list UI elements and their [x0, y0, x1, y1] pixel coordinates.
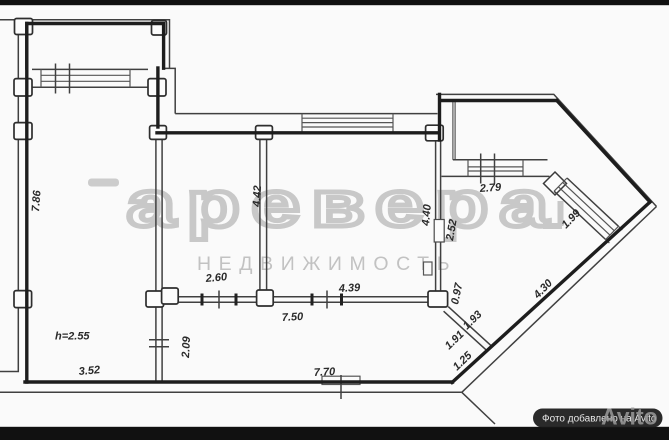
svg-text:7.70: 7.70: [314, 366, 337, 379]
svg-text:4.39: 4.39: [338, 282, 362, 295]
svg-text:2.60: 2.60: [204, 271, 228, 285]
svg-text:7.50: 7.50: [282, 311, 305, 324]
svg-text:2.09: 2.09: [180, 335, 193, 359]
svg-text:Avito: Avito: [601, 404, 658, 430]
svg-text:НЕДВИЖИМОСТЬ: НЕДВИЖИМОСТЬ: [197, 253, 457, 275]
svg-text:4.42: 4.42: [251, 185, 264, 208]
svg-text:h=2.55: h=2.55: [55, 331, 90, 343]
svg-text:2.79: 2.79: [478, 181, 502, 195]
svg-text:3.52: 3.52: [78, 364, 100, 378]
svg-text:7.86: 7.86: [30, 189, 44, 212]
svg-text:4.40: 4.40: [420, 203, 434, 227]
